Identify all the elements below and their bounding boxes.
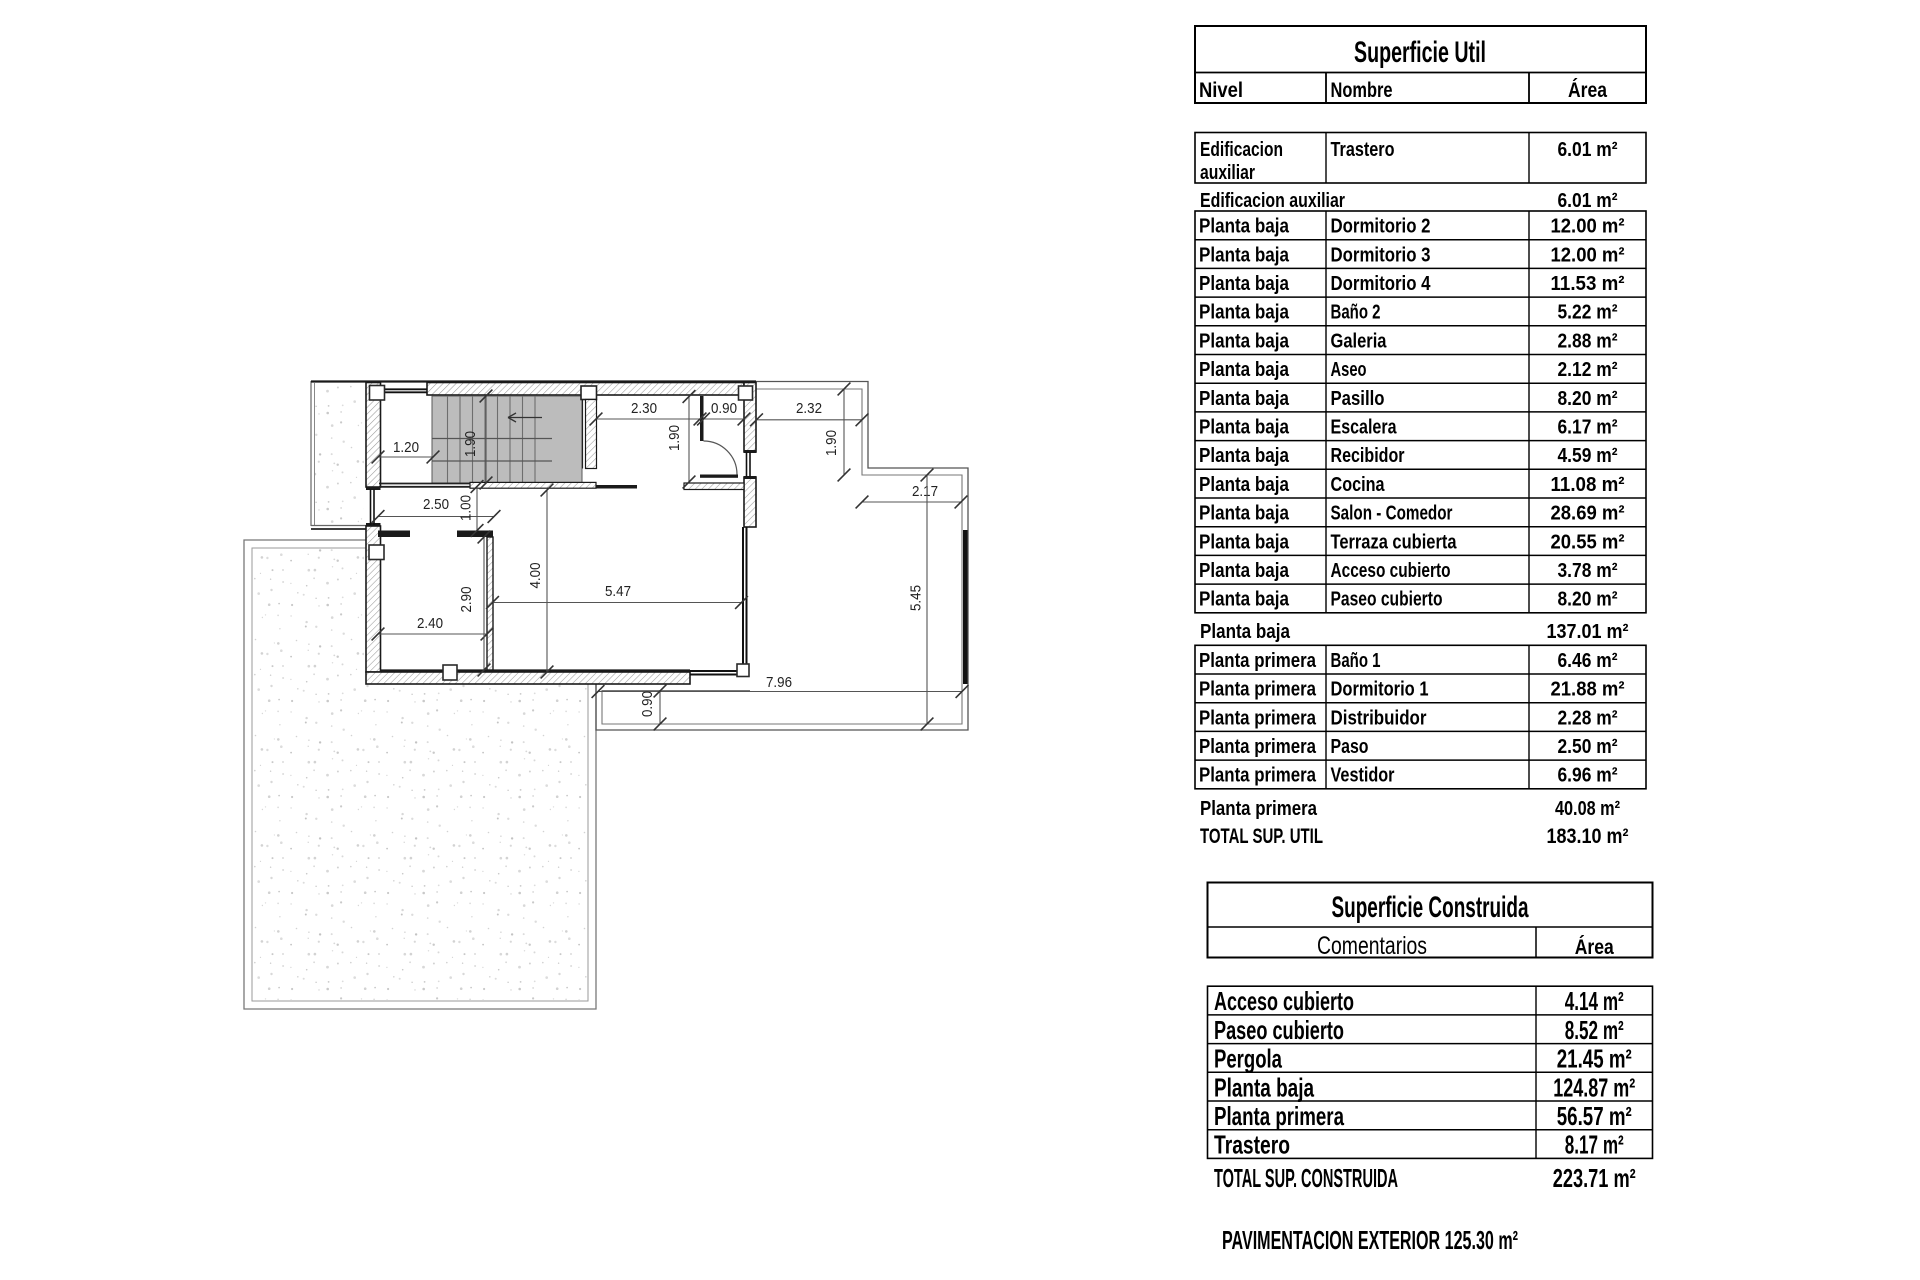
svg-text:Nivel: Nivel [1199, 79, 1243, 102]
svg-text:223.71 m²: 223.71 m² [1553, 1163, 1636, 1193]
svg-text:1.00: 1.00 [458, 495, 475, 521]
svg-text:Galeria: Galeria [1331, 330, 1388, 352]
svg-text:4.00: 4.00 [527, 563, 544, 589]
svg-text:7.96: 7.96 [766, 674, 792, 691]
svg-text:Planta baja: Planta baja [1199, 589, 1290, 611]
svg-text:6.01 m²: 6.01 m² [1558, 139, 1618, 161]
svg-text:Aseo: Aseo [1331, 359, 1367, 381]
svg-text:11.53 m²: 11.53 m² [1551, 273, 1625, 295]
svg-text:Dormitorio 3: Dormitorio 3 [1331, 244, 1431, 266]
svg-text:Trastero: Trastero [1214, 1130, 1290, 1160]
svg-text:124.87 m²: 124.87 m² [1553, 1072, 1635, 1102]
svg-text:6.17 m²: 6.17 m² [1558, 417, 1618, 439]
svg-text:Terraza cubierta: Terraza cubierta [1331, 531, 1458, 553]
svg-text:2.50: 2.50 [423, 496, 449, 513]
svg-text:Dormitorio 4: Dormitorio 4 [1331, 273, 1432, 295]
svg-text:5.47: 5.47 [605, 583, 631, 600]
svg-text:2.88 m²: 2.88 m² [1558, 330, 1618, 352]
svg-text:21.88 m²: 21.88 m² [1551, 679, 1625, 701]
svg-text:Acceso cubierto: Acceso cubierto [1214, 986, 1354, 1016]
svg-text:Superficie Construida: Superficie Construida [1332, 891, 1529, 924]
svg-text:2.30: 2.30 [631, 400, 657, 417]
svg-text:Edificacion auxiliar: Edificacion auxiliar [1200, 190, 1345, 212]
svg-text:Nombre: Nombre [1331, 79, 1393, 102]
svg-text:0.90: 0.90 [639, 691, 656, 717]
svg-text:TOTAL SUP. UTIL: TOTAL SUP. UTIL [1200, 825, 1323, 848]
svg-text:Planta baja: Planta baja [1199, 474, 1290, 496]
svg-text:Planta primera: Planta primera [1214, 1101, 1344, 1131]
svg-text:Dormitorio 2: Dormitorio 2 [1331, 216, 1431, 238]
svg-text:4.59 m²: 4.59 m² [1558, 445, 1618, 467]
svg-text:2.12 m²: 2.12 m² [1558, 359, 1618, 381]
svg-text:Distribuidor: Distribuidor [1331, 707, 1427, 729]
svg-text:Edificacion: Edificacion [1200, 139, 1283, 161]
svg-text:Dormitorio 1: Dormitorio 1 [1331, 679, 1429, 701]
svg-text:Baño 1: Baño 1 [1331, 650, 1381, 672]
svg-text:Planta primera: Planta primera [1199, 765, 1317, 787]
svg-text:56.57 m²: 56.57 m² [1557, 1101, 1632, 1131]
svg-text:Planta primera: Planta primera [1199, 650, 1317, 672]
svg-text:Área: Área [1575, 936, 1614, 959]
svg-text:21.45 m²: 21.45 m² [1557, 1044, 1632, 1074]
svg-text:Planta primera: Planta primera [1199, 707, 1317, 729]
svg-text:8.20 m²: 8.20 m² [1558, 589, 1618, 611]
svg-text:2.17: 2.17 [912, 483, 938, 500]
svg-text:1.20: 1.20 [393, 439, 419, 456]
svg-text:8.17 m²: 8.17 m² [1565, 1130, 1624, 1160]
svg-text:Pasillo: Pasillo [1331, 388, 1385, 410]
svg-text:Superficie Util: Superficie Util [1354, 36, 1486, 69]
svg-text:Planta baja: Planta baja [1199, 388, 1290, 410]
svg-text:6.96 m²: 6.96 m² [1558, 765, 1618, 787]
svg-text:6.46 m²: 6.46 m² [1558, 650, 1618, 672]
svg-text:5.22 m²: 5.22 m² [1558, 302, 1618, 324]
svg-text:PAVIMENTACION EXTERIOR 125.30: PAVIMENTACION EXTERIOR 125.30 m² [1222, 1225, 1518, 1255]
svg-text:Escalera: Escalera [1331, 417, 1398, 439]
svg-text:8.52 m²: 8.52 m² [1565, 1015, 1624, 1045]
svg-text:Planta baja: Planta baja [1199, 531, 1290, 553]
svg-text:Planta baja: Planta baja [1200, 621, 1291, 643]
svg-text:Planta primera: Planta primera [1199, 736, 1317, 758]
svg-text:Área: Área [1568, 79, 1607, 102]
svg-text:12.00 m²: 12.00 m² [1551, 216, 1625, 238]
svg-text:2.50 m²: 2.50 m² [1558, 736, 1618, 758]
svg-text:2.90: 2.90 [458, 587, 475, 613]
svg-text:auxiliar: auxiliar [1200, 162, 1255, 184]
svg-text:Cocina: Cocina [1331, 474, 1386, 496]
svg-text:0.90: 0.90 [711, 400, 737, 417]
svg-text:4.14 m²: 4.14 m² [1565, 986, 1624, 1016]
svg-text:Paso: Paso [1331, 736, 1369, 758]
svg-text:Planta baja: Planta baja [1199, 359, 1290, 381]
svg-text:8.20 m²: 8.20 m² [1558, 388, 1618, 410]
svg-text:Planta baja: Planta baja [1199, 330, 1290, 352]
svg-text:Pergola: Pergola [1214, 1044, 1282, 1074]
svg-text:Planta baja: Planta baja [1199, 417, 1290, 439]
svg-text:Planta baja: Planta baja [1199, 216, 1290, 238]
svg-text:Acceso cubierto: Acceso cubierto [1331, 560, 1451, 582]
svg-text:137.01 m²: 137.01 m² [1547, 621, 1629, 643]
svg-text:Planta baja: Planta baja [1199, 302, 1290, 324]
svg-text:Planta baja: Planta baja [1199, 560, 1290, 582]
svg-text:Planta baja: Planta baja [1199, 445, 1290, 467]
svg-text:Recibidor: Recibidor [1331, 445, 1405, 467]
svg-text:Paseo cubierto: Paseo cubierto [1331, 589, 1443, 611]
svg-text:183.10 m²: 183.10 m² [1547, 825, 1629, 848]
svg-text:Comentarios: Comentarios [1317, 932, 1427, 960]
svg-text:6.01 m²: 6.01 m² [1558, 190, 1618, 212]
svg-text:1.90: 1.90 [666, 425, 683, 451]
svg-text:Trastero: Trastero [1331, 139, 1395, 161]
svg-text:Planta baja: Planta baja [1214, 1072, 1314, 1102]
svg-text:Vestidor: Vestidor [1331, 765, 1395, 787]
svg-text:40.08 m²: 40.08 m² [1555, 798, 1620, 820]
svg-text:3.78 m²: 3.78 m² [1558, 560, 1618, 582]
svg-text:Planta primera: Planta primera [1200, 798, 1318, 820]
svg-text:Planta baja: Planta baja [1199, 244, 1290, 266]
svg-text:2.32: 2.32 [796, 400, 822, 417]
svg-text:2.40: 2.40 [417, 615, 443, 632]
svg-text:Planta baja: Planta baja [1199, 273, 1290, 295]
svg-text:5.45: 5.45 [908, 585, 925, 611]
svg-text:2.28 m²: 2.28 m² [1558, 707, 1618, 729]
svg-text:12.00 m²: 12.00 m² [1551, 244, 1625, 266]
svg-text:Salon - Comedor: Salon - Comedor [1331, 503, 1453, 525]
svg-text:Paseo cubierto: Paseo cubierto [1214, 1015, 1344, 1045]
svg-text:28.69 m²: 28.69 m² [1551, 503, 1625, 525]
svg-text:20.55 m²: 20.55 m² [1551, 531, 1625, 553]
svg-text:1.90: 1.90 [823, 430, 840, 456]
svg-text:TOTAL SUP. CONSTRUIDA: TOTAL SUP. CONSTRUIDA [1214, 1163, 1398, 1193]
svg-text:Planta primera: Planta primera [1199, 679, 1317, 701]
svg-text:11.08 m²: 11.08 m² [1551, 474, 1625, 496]
svg-text:1.90: 1.90 [462, 431, 479, 457]
svg-text:Baño 2: Baño 2 [1331, 302, 1381, 324]
svg-text:Planta baja: Planta baja [1199, 503, 1290, 525]
